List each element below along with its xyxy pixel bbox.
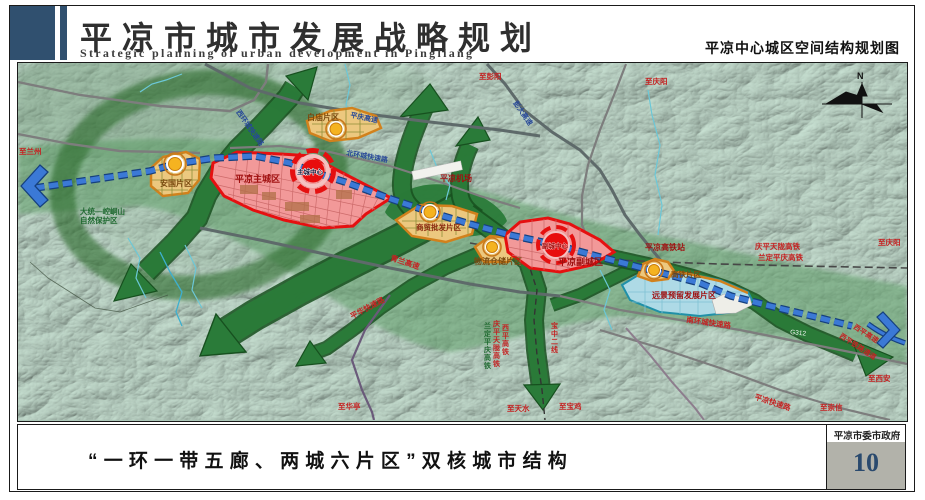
svg-text:平凉机场: 平凉机场 [440,173,472,183]
svg-text:至庆阳: 至庆阳 [645,76,668,86]
svg-text:平凉高铁站: 平凉高铁站 [645,242,685,252]
svg-text:至西安: 至西安 [868,373,891,383]
svg-text:至天水: 至天水 [507,403,530,413]
svg-text:副城中心: 副城中心 [542,241,569,250]
svg-text:宝中二线: 宝中二线 [551,321,558,354]
svg-text:高铁片区: 高铁片区 [671,269,701,279]
svg-text:至宝鸡: 至宝鸡 [559,401,582,411]
svg-text:安国片区: 安国片区 [160,178,192,188]
svg-text:至彭阳: 至彭阳 [479,71,502,81]
svg-text:平凉副城区: 平凉副城区 [558,256,603,267]
svg-text:至兰州: 至兰州 [19,146,42,156]
svg-text:商贸批发片区: 商贸批发片区 [416,222,461,232]
svg-text:至崇信: 至崇信 [820,402,843,412]
svg-text:物流仓储片区: 物流仓储片区 [474,256,522,266]
svg-text:大统—崆峒山: 大统—崆峒山 [80,206,125,216]
svg-text:庆平天陇高铁: 庆平天陇高铁 [492,319,501,368]
svg-text:自然保护区: 自然保护区 [80,215,118,225]
svg-text:至庆阳: 至庆阳 [878,237,901,247]
svg-text:兰定平庆高铁: 兰定平庆高铁 [758,252,803,262]
svg-text:N: N [857,71,864,81]
svg-text:兰定平庆高铁: 兰定平庆高铁 [483,321,491,370]
svg-text:庆平天陇高铁: 庆平天陇高铁 [754,241,800,251]
svg-text:至华亭: 至华亭 [338,401,361,411]
svg-text:主城中心: 主城中心 [297,167,324,176]
svg-text:白庙片区: 白庙片区 [307,112,339,122]
svg-text:平凉主城区: 平凉主城区 [235,173,280,184]
svg-text:远景预留发展片区: 远景预留发展片区 [652,290,716,300]
